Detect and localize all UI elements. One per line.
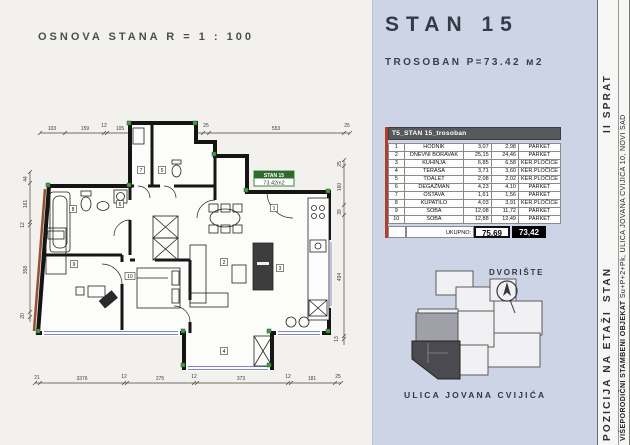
building-address: Su+P+2+Pk, ULICA JOVANA CVIJIĆA 10, NOVI…: [620, 114, 627, 300]
svg-text:20: 20: [20, 313, 26, 319]
cell-net: 12,49: [491, 216, 518, 224]
svg-text:494: 494: [337, 273, 343, 282]
cell-net: 2,02: [491, 176, 518, 184]
svg-text:105: 105: [116, 126, 125, 132]
svg-text:358: 358: [23, 266, 29, 275]
svg-text:25: 25: [337, 161, 343, 167]
cell-no: 8: [389, 200, 405, 208]
svg-text:373: 373: [237, 376, 246, 382]
cell-gross: 1,61: [464, 192, 491, 200]
cell-name: KUPATILO: [404, 200, 464, 208]
cell-floor: PARKET: [518, 192, 560, 200]
cell-gross: 12,88: [464, 216, 491, 224]
table-row: 2DNEVNI BORAVAK25,1524,46PARKET: [389, 152, 561, 160]
total-gross-value: 75,69: [474, 226, 510, 238]
svg-text:7: 7: [140, 168, 143, 174]
table-row: 7OSTAVA1,611,56PARKET: [389, 192, 561, 200]
svg-text:12: 12: [20, 222, 26, 228]
cell-gross: 4,03: [464, 200, 491, 208]
svg-text:25: 25: [344, 123, 350, 129]
cell-floor: KER.PLOČICE: [518, 200, 560, 208]
cell-no: 10: [389, 216, 405, 224]
svg-text:13: 13: [334, 336, 340, 342]
cell-no: 7: [389, 192, 405, 200]
cell-floor: KER.PLOČICE: [518, 168, 560, 176]
site-unit-highlight: [412, 341, 460, 379]
cell-floor: PARKET: [518, 184, 560, 192]
cell-net: 6,58: [491, 160, 518, 168]
cell-floor: PARKET: [518, 152, 560, 160]
svg-text:159: 159: [81, 126, 90, 132]
cell-floor: KER.PLOČICE: [518, 176, 560, 184]
svg-text:2: 2: [223, 260, 226, 266]
total-label: UKUPNO:: [406, 226, 474, 238]
cell-no: 3: [389, 160, 405, 168]
cell-gross: 25,15: [464, 152, 491, 160]
table-total-row: UKUPNO: 75,69 73,42: [388, 226, 561, 238]
svg-text:103: 103: [48, 126, 57, 132]
cell-floor: KER.PLOČICE: [518, 160, 560, 168]
cell-name: SOBA: [404, 216, 464, 224]
cell-gross: 12,08: [464, 208, 491, 216]
site-plan: [398, 263, 568, 388]
table-row: 3KUHINJA6,856,58KER.PLOČICE: [389, 160, 561, 168]
svg-text:275: 275: [156, 376, 165, 382]
cell-name: TOALET: [404, 176, 464, 184]
svg-text:10: 10: [127, 274, 133, 280]
svg-text:6: 6: [119, 202, 122, 208]
cell-gross: 3,07: [464, 144, 491, 152]
cell-name: OSTAVA: [404, 192, 464, 200]
stan-vertical-label: STAN: [602, 267, 613, 302]
unit-tag: STAN 15 73.42m2: [254, 171, 294, 187]
table-row: 9SOBA12,0811,72PARKET: [389, 208, 561, 216]
cell-gross: 3,71: [464, 168, 491, 176]
svg-text:1: 1: [273, 206, 276, 212]
svg-text:25: 25: [335, 374, 341, 380]
svg-text:12: 12: [191, 374, 197, 380]
plan-sheet: OSNOVA STANA R = 1 : 100 STAN 15 TROSOBA…: [0, 0, 630, 445]
svg-text:3: 3: [279, 266, 282, 272]
cell-name: DNEVNI BORAVAK: [404, 152, 464, 160]
cell-net: 1,56: [491, 192, 518, 200]
cell-no: 1: [389, 144, 405, 152]
cell-name: SOBA: [404, 208, 464, 216]
table-accent-strip: [385, 127, 388, 238]
area-table: T5_STAN 15_trosoban 1HODNIK3,072,98PARKE…: [388, 127, 561, 238]
cell-net: 3,91: [491, 200, 518, 208]
building-vertical-label: VIŠEPORODIČNI STAMBENI OBJEKAT Su+P+2+Pk…: [620, 114, 627, 441]
cell-net: 24,46: [491, 152, 518, 160]
cell-name: DEGAŽMAN: [404, 184, 464, 192]
svg-text:160: 160: [337, 183, 343, 192]
area-table-grid: 1HODNIK3,072,98PARKET2DNEVNI BORAVAK25,1…: [388, 143, 561, 224]
cell-name: TERASA: [404, 168, 464, 176]
cell-net: 4,10: [491, 184, 518, 192]
total-net-value: 73,42: [512, 226, 546, 238]
cell-net: 3,60: [491, 168, 518, 176]
svg-text:4: 4: [223, 349, 226, 355]
street-label: ULICA JOVANA CVIJIĆA: [404, 390, 546, 400]
cell-net: 11,72: [491, 208, 518, 216]
total-spacer: [388, 226, 406, 238]
svg-text:STAN 15: STAN 15: [264, 173, 284, 179]
cell-no: 9: [389, 208, 405, 216]
table-row: 10SOBA12,8812,49PARKET: [389, 216, 561, 224]
cell-gross: 6,85: [464, 160, 491, 168]
svg-text:73.42m2: 73.42m2: [263, 181, 284, 187]
svg-text:553: 553: [272, 126, 281, 132]
cell-no: 2: [389, 152, 405, 160]
area-table-body: 1HODNIK3,072,98PARKET2DNEVNI BORAVAK25,1…: [389, 144, 561, 224]
svg-text:12: 12: [121, 374, 127, 380]
table-row: 4TERASA3,713,60KER.PLOČICE: [389, 168, 561, 176]
cell-name: KUHINJA: [404, 160, 464, 168]
svg-text:39: 39: [337, 209, 343, 215]
svg-text:9: 9: [73, 262, 76, 268]
svg-text:161: 161: [23, 200, 29, 209]
svg-text:12: 12: [285, 374, 291, 380]
svg-text:8: 8: [72, 207, 75, 213]
table-row: 6DEGAŽMAN4,234,10PARKET: [389, 184, 561, 192]
cell-no: 6: [389, 184, 405, 192]
position-vertical-label: POZICIJA NA ETAŽI: [602, 310, 613, 441]
svg-text:44: 44: [23, 176, 29, 182]
table-title: T5_STAN 15_trosoban: [388, 127, 561, 140]
svg-text:3376: 3376: [76, 376, 87, 382]
cell-no: 5: [389, 176, 405, 184]
svg-text:181: 181: [308, 376, 317, 382]
floor-vertical-label: II SPRAT: [602, 74, 613, 133]
svg-text:5: 5: [161, 168, 164, 174]
svg-text:12: 12: [101, 123, 107, 129]
table-row: 1HODNIK3,072,98PARKET: [389, 144, 561, 152]
cell-floor: PARKET: [518, 208, 560, 216]
cell-floor: PARKET: [518, 216, 560, 224]
cell-no: 4: [389, 168, 405, 176]
table-row: 8KUPATILO4,033,91KER.PLOČICE: [389, 200, 561, 208]
svg-text:21: 21: [34, 375, 40, 381]
site-unit-neighbor: [416, 313, 458, 341]
cell-gross: 4,23: [464, 184, 491, 192]
cell-net: 2,98: [491, 144, 518, 152]
building-name: VIŠEPORODIČNI STAMBENI OBJEKAT: [620, 301, 627, 441]
svg-text:25: 25: [203, 123, 209, 129]
cell-floor: PARKET: [518, 144, 560, 152]
strip-divider: [618, 0, 619, 445]
cell-name: HODNIK: [404, 144, 464, 152]
table-row: 5TOALET2,082,02KER.PLOČICE: [389, 176, 561, 184]
cell-gross: 2,08: [464, 176, 491, 184]
